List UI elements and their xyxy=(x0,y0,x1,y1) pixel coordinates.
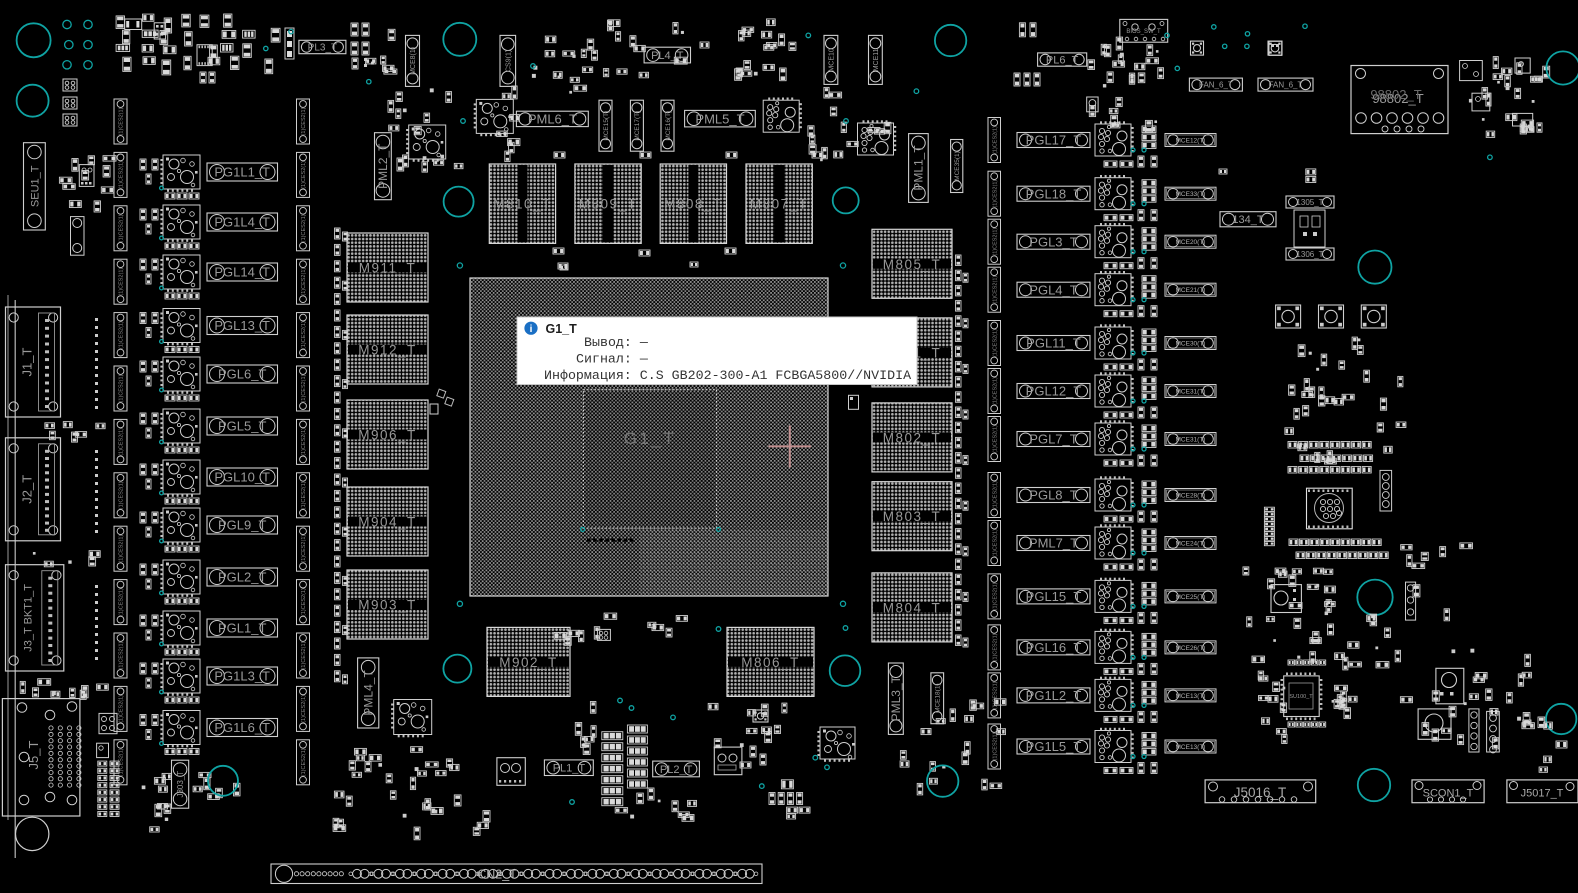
svg-text:(1)CES2(1): (1)CES2(1) xyxy=(119,428,125,456)
svg-text:PG1L4_T: PG1L4_T xyxy=(214,215,270,230)
svg-text:(1)CES2(1): (1)CES2(1) xyxy=(993,481,999,509)
svg-text:J5_T: J5_T xyxy=(26,740,41,769)
svg-text:PL3_T: PL3_T xyxy=(308,43,337,54)
svg-text:MCE31(T): MCE31(T) xyxy=(1176,437,1206,444)
svg-text:M903_T: M903_T xyxy=(358,598,417,613)
svg-text:PML3_T: PML3_T xyxy=(889,675,903,721)
svg-text:J1_T: J1_T xyxy=(20,347,35,376)
svg-text:(1)CES2(1): (1)CES2(1) xyxy=(119,588,125,616)
svg-text:(1)CES2(1): (1)CES2(1) xyxy=(301,748,307,776)
svg-text:M804_T: M804_T xyxy=(883,600,942,615)
svg-text:J5017_T: J5017_T xyxy=(1521,788,1564,800)
svg-text:MCE26(T): MCE26(T) xyxy=(1176,645,1206,652)
svg-text:MCE33(T): MCE33(T) xyxy=(1176,191,1206,198)
svg-text:J803_T: J803_T xyxy=(176,771,185,798)
svg-text:PML7_T: PML7_T xyxy=(1029,536,1078,551)
svg-text:(1)CES2(1): (1)CES2(1) xyxy=(301,268,307,296)
svg-text:MCE11: MCE11 xyxy=(873,48,880,71)
svg-text:(1)CES2(1): (1)CES2(1) xyxy=(119,535,125,563)
svg-text:PG1L6_T: PG1L6_T xyxy=(214,720,270,735)
svg-text:MCE28(T): MCE28(T) xyxy=(1176,493,1206,500)
svg-text:134_T: 134_T xyxy=(1232,214,1263,226)
svg-text:MCE35(1): MCE35(1) xyxy=(954,151,961,181)
svg-text:PG1L1_T: PG1L1_T xyxy=(214,165,270,180)
svg-text:G1_T: G1_T xyxy=(624,429,677,448)
svg-text:SCON1_T: SCON1_T xyxy=(1423,788,1474,800)
svg-text:(1)CES2(1): (1)CES2(1) xyxy=(301,588,307,616)
svg-text:98802_T: 98802_T xyxy=(1370,87,1421,102)
svg-text:(1)CES2(1): (1)CES2(1) xyxy=(301,535,307,563)
svg-text:M803_T: M803_T xyxy=(883,509,942,524)
svg-text:MCE15(T): MCE15(T) xyxy=(603,111,610,141)
svg-text:J2_T: J2_T xyxy=(20,475,35,504)
svg-text:(1)CES2(1): (1)CES2(1) xyxy=(119,748,125,776)
svg-text:(1)CES2(1): (1)CES2(1) xyxy=(301,374,307,402)
svg-text:M802_T: M802_T xyxy=(883,430,942,445)
svg-text:(1)CES2(1): (1)CES2(1) xyxy=(993,529,999,557)
svg-text:M808_T: M808_T xyxy=(664,197,723,212)
svg-text:PGL14_T: PGL14_T xyxy=(214,265,270,280)
svg-text:(1)CES2(1): (1)CES2(1) xyxy=(993,633,999,661)
svg-text:FAN_6_T: FAN_6_T xyxy=(1199,81,1233,90)
svg-text:(1)CES2(1): (1)CES2(1) xyxy=(993,425,999,453)
svg-text:PML2_T: PML2_T xyxy=(376,143,390,189)
svg-text:(1)CES2(1): (1)CES2(1) xyxy=(119,374,125,402)
svg-text:M904_T: M904_T xyxy=(358,515,417,530)
svg-text:1305_T: 1305_T xyxy=(1296,198,1323,207)
svg-text:PGL18_T: PGL18_T xyxy=(1026,186,1082,201)
svg-text:Информация: C.S GB202-300-A1 F: Информация: C.S GB202-300-A1 FCBGA5800//… xyxy=(544,368,911,383)
svg-text:PGL2_T: PGL2_T xyxy=(218,570,266,585)
svg-text:PL1_T: PL1_T xyxy=(553,763,586,775)
svg-text:PML6_T: PML6_T xyxy=(528,112,577,127)
svg-text:(1)CES2(1): (1)CES2(1) xyxy=(301,161,307,189)
svg-text:M806_T: M806_T xyxy=(741,655,800,670)
svg-text:J3_T BKT1_T: J3_T BKT1_T xyxy=(23,584,35,652)
svg-text:(1)CES2(1): (1)CES2(1) xyxy=(301,428,307,456)
svg-text:MCE24(T): MCE24(T) xyxy=(1176,541,1206,548)
svg-text:MCE10: MCE10 xyxy=(828,48,835,71)
svg-text:(1)CES2(1): (1)CES2(1) xyxy=(119,641,125,669)
svg-text:CN2_T: CN2_T xyxy=(477,867,517,881)
svg-text:PL2_T: PL2_T xyxy=(660,764,693,776)
svg-text:(1)CES2(1): (1)CES2(1) xyxy=(119,695,125,723)
svg-text:PML5_T: PML5_T xyxy=(695,111,744,126)
svg-text:(1)CES2(1): (1)CES2(1) xyxy=(301,214,307,242)
svg-text:MCE25(T): MCE25(T) xyxy=(1176,594,1206,601)
svg-text:M807_T: M807_T xyxy=(750,197,809,212)
svg-text:PGL3_T: PGL3_T xyxy=(1029,234,1077,249)
svg-text:(1)CES2(1): (1)CES2(1) xyxy=(993,377,999,405)
svg-text:PGL17_T: PGL17_T xyxy=(1026,133,1082,148)
svg-text:(1)CES2(1): (1)CES2(1) xyxy=(993,180,999,208)
svg-text:MCE12(T): MCE12(T) xyxy=(1176,138,1206,145)
svg-text:CS9(1): CS9(1) xyxy=(505,50,512,72)
svg-text:(1)CES2(1): (1)CES2(1) xyxy=(993,582,999,610)
svg-text:MCE31(T): MCE31(T) xyxy=(1176,389,1206,396)
svg-text:PGL8_T: PGL8_T xyxy=(1029,488,1077,503)
svg-text:i: i xyxy=(530,324,533,335)
svg-text:M911_T: M911_T xyxy=(359,261,417,276)
svg-text:PGL6_T: PGL6_T xyxy=(218,367,266,382)
svg-text:(1)CES2(1): (1)CES2(1) xyxy=(993,276,999,304)
svg-text:(1)CES2(1): (1)CES2(1) xyxy=(301,481,307,509)
svg-text:MCE13(T): MCE13(T) xyxy=(1176,693,1206,700)
svg-text:M906_T: M906_T xyxy=(358,428,417,443)
svg-text:MCE16(T): MCE16(T) xyxy=(665,111,672,141)
svg-text:(1)CES2(1): (1)CES2(1) xyxy=(301,695,307,723)
svg-text:PGL9_T: PGL9_T xyxy=(218,518,266,533)
svg-text:Вывод: —: Вывод: — xyxy=(584,335,649,350)
svg-text:(1)CES2(1): (1)CES2(1) xyxy=(119,214,125,242)
svg-text:SEU1_T: SEU1_T xyxy=(29,165,41,207)
svg-text:PGL15_T: PGL15_T xyxy=(1026,589,1082,604)
svg-text:PML4_T: PML4_T xyxy=(362,670,376,716)
svg-text:PML1_T: PML1_T xyxy=(912,145,926,191)
svg-text:(1)CES2(1): (1)CES2(1) xyxy=(301,641,307,669)
svg-text:MCE8(1): MCE8(1) xyxy=(410,47,417,75)
svg-text:SU100_T: SU100_T xyxy=(1289,694,1313,700)
svg-text:M902_T: M902_T xyxy=(499,655,558,670)
svg-text:(1)CES2(1): (1)CES2(1) xyxy=(119,107,125,135)
svg-text:PGL10_T: PGL10_T xyxy=(214,470,270,485)
svg-text:PL6_T: PL6_T xyxy=(1046,55,1079,67)
svg-text:(1)CES2(1): (1)CES2(1) xyxy=(993,126,999,154)
svg-text:(1)CES2(1): (1)CES2(1) xyxy=(993,329,999,357)
svg-text:(1)CES2(1): (1)CES2(1) xyxy=(301,321,307,349)
svg-text:PG1L2_T: PG1L2_T xyxy=(1026,688,1082,703)
svg-text:MCE17(T): MCE17(T) xyxy=(634,111,641,141)
svg-text:Сигнал: —: Сигнал: — xyxy=(576,351,649,366)
svg-text:M810_T: M810_T xyxy=(493,197,552,212)
svg-text:PG1L3_T: PG1L3_T xyxy=(214,669,270,684)
svg-text:PG1L5_T: PG1L5_T xyxy=(1026,739,1082,754)
svg-text:MCE18(1): MCE18(1) xyxy=(935,683,942,713)
svg-text:(1)CES2(1): (1)CES2(1) xyxy=(301,107,307,135)
svg-text:PGL7_T: PGL7_T xyxy=(1029,432,1077,447)
svg-text:(1)CES2(1): (1)CES2(1) xyxy=(119,161,125,189)
svg-text:PGL5_T: PGL5_T xyxy=(218,419,266,434)
svg-text:FAN_6_T: FAN_6_T xyxy=(1269,81,1303,90)
svg-text:PGL16_T: PGL16_T xyxy=(1026,640,1082,655)
svg-text:(1)CES2(1): (1)CES2(1) xyxy=(993,732,999,760)
svg-text:M809_T: M809_T xyxy=(579,197,638,212)
svg-text:(1)CES2(1): (1)CES2(1) xyxy=(119,321,125,349)
svg-text:PGL12_T: PGL12_T xyxy=(1026,384,1082,399)
svg-text:M912_T: M912_T xyxy=(358,343,417,358)
svg-text:PL4_T: PL4_T xyxy=(651,50,684,62)
svg-text:MCE13(T): MCE13(T) xyxy=(1176,744,1206,751)
svg-text:MCE30(T): MCE30(T) xyxy=(1176,341,1206,348)
svg-text:MCE21(T): MCE21(T) xyxy=(1176,287,1206,294)
svg-text:PGL1_T: PGL1_T xyxy=(218,621,266,636)
svg-text:G1_T: G1_T xyxy=(546,322,578,336)
svg-text:PGL4_T: PGL4_T xyxy=(1029,282,1077,297)
svg-text:M805_T: M805_T xyxy=(883,257,942,272)
svg-text:(1)CES2(1): (1)CES2(1) xyxy=(993,228,999,256)
svg-text:(1)CES2(1): (1)CES2(1) xyxy=(119,268,125,296)
svg-text:MCE20(T): MCE20(T) xyxy=(1176,239,1206,246)
svg-text:1306_T: 1306_T xyxy=(1296,250,1323,259)
svg-text:PGL13_T: PGL13_T xyxy=(214,318,270,333)
svg-text:PGL11_T: PGL11_T xyxy=(1026,336,1081,351)
svg-text:(1)CES2(1): (1)CES2(1) xyxy=(119,481,125,509)
svg-text:BIOS_SW_T: BIOS_SW_T xyxy=(1126,29,1161,35)
